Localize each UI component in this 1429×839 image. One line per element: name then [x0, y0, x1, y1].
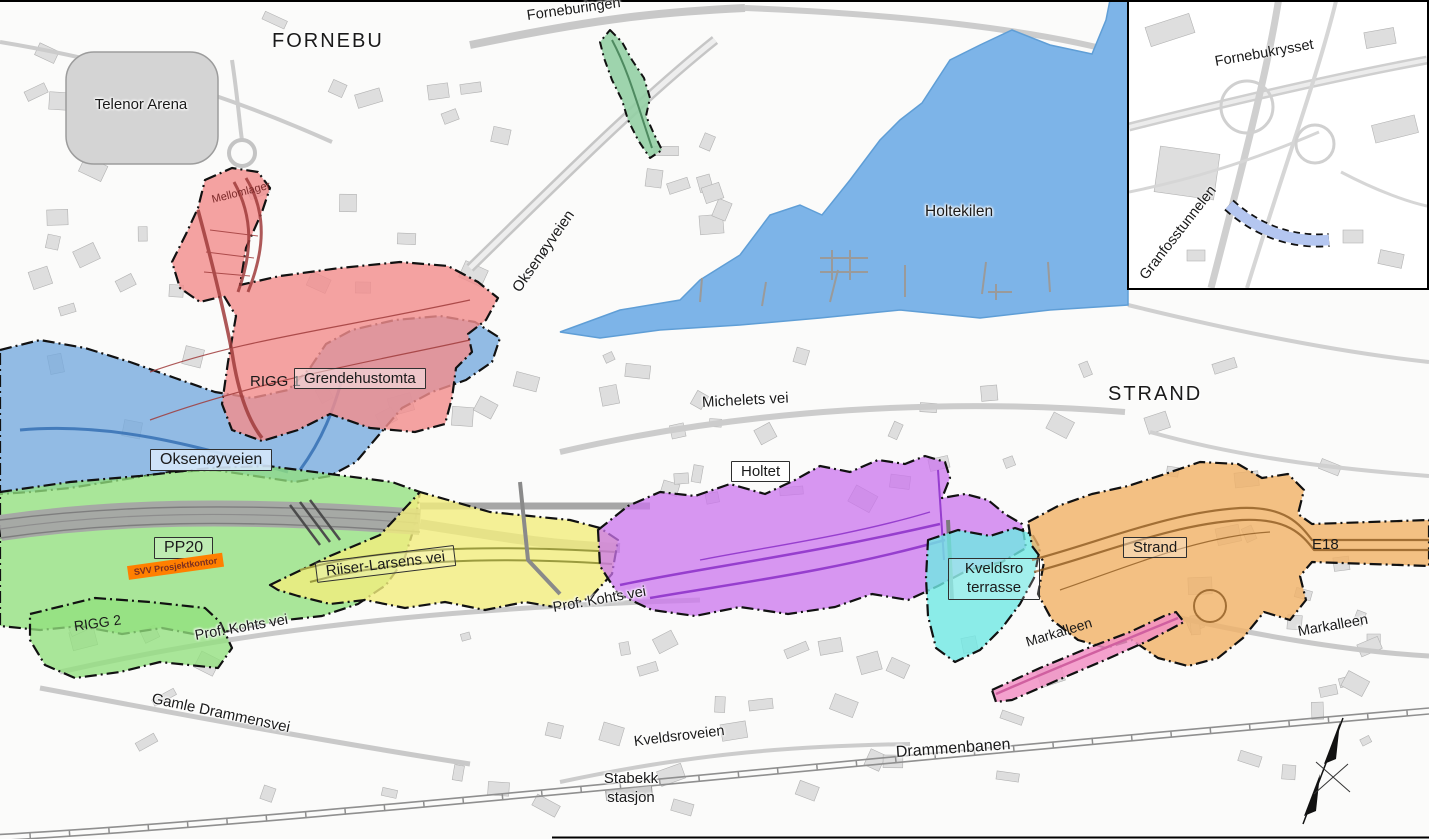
- zone-label-strand: Strand: [1123, 537, 1187, 558]
- zone-label-grendehustomta: Grendehustomta: [294, 368, 426, 389]
- region-label-fornebu: FORNEBU: [272, 30, 384, 53]
- telenor-arena-label: Telenor Arena: [94, 96, 188, 115]
- road-label-e18: E18: [1312, 536, 1339, 553]
- region-label-strand: STRAND: [1108, 383, 1202, 406]
- zone-label-oksenoyveien: Oksenøyveien: [150, 449, 272, 471]
- zone-label-kveldsro-terrasse: Kveldsro terrasse: [948, 558, 1040, 600]
- water-label-holtekilen: Holtekilen: [925, 203, 993, 221]
- holtekilen-water: [560, 0, 1128, 338]
- station-label-stabekk: Stabekk stasjon: [590, 770, 672, 808]
- construction-phase-map: FORNEBU Telenor Arena Forneburingen Okse…: [0, 0, 1429, 839]
- zone-label-holtet: Holtet: [731, 461, 790, 482]
- inset-map-fornebukrysset: Fornebukrysset Granfosstunnelen: [1127, 0, 1429, 290]
- north-arrow-icon: [1303, 718, 1350, 824]
